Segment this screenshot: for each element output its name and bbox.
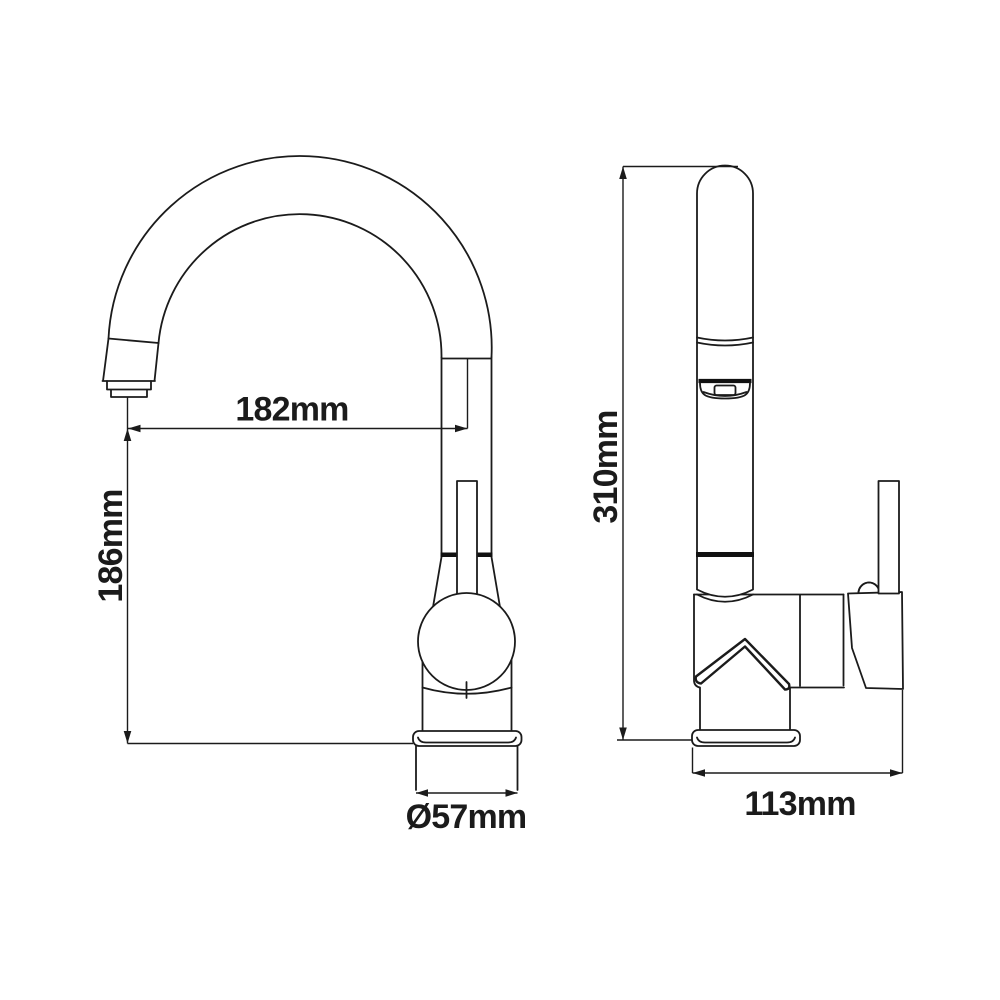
side-view-drawing bbox=[103, 156, 522, 790]
dimension-body-width: 113mm bbox=[693, 690, 903, 823]
base-flange-side bbox=[413, 731, 522, 746]
swivel-joint-circle bbox=[418, 593, 515, 690]
handle-lever-side bbox=[457, 481, 477, 595]
dimension-base-diameter: Ø57mm bbox=[406, 789, 527, 836]
spout-nozzle-steps bbox=[107, 381, 151, 397]
body-bottom-edge bbox=[789, 688, 844, 731]
spout-tip bbox=[103, 339, 159, 382]
handle-base bbox=[848, 592, 903, 689]
aerator-outlet bbox=[715, 386, 736, 396]
dim-label-spout-height: 186mm bbox=[92, 489, 130, 602]
technical-drawing-svg: 182mm 186mm Ø57mm bbox=[0, 0, 1000, 1000]
dimension-spout-height: 186mm bbox=[92, 429, 413, 744]
spout-tip-seam bbox=[109, 339, 159, 344]
joint-bottom-seam bbox=[423, 682, 512, 698]
spout-outer-arc bbox=[109, 156, 492, 357]
handle-lever-front bbox=[879, 481, 900, 594]
dim-label-base-diameter: Ø57mm bbox=[406, 798, 527, 836]
handle-pivot-dome-front bbox=[859, 583, 880, 594]
front-view-drawing bbox=[692, 166, 903, 747]
body-left-and-pedestal bbox=[694, 595, 700, 731]
dim-label-spout-reach: 182mm bbox=[235, 391, 348, 429]
dim-label-body-width: 113mm bbox=[744, 785, 855, 823]
dim-label-total-height: 310mm bbox=[587, 410, 625, 523]
handle-pivot-dome bbox=[859, 583, 880, 594]
spout-inner-arc bbox=[159, 214, 442, 357]
body-chevron-seam bbox=[696, 639, 790, 690]
collar-band-front bbox=[696, 552, 754, 557]
base-flange-front bbox=[692, 730, 800, 746]
faucet-dimension-diagram: 182mm 186mm Ø57mm bbox=[0, 0, 1000, 1000]
dimension-spout-reach: 182mm bbox=[128, 359, 468, 433]
base-cylinder-side bbox=[416, 746, 518, 790]
